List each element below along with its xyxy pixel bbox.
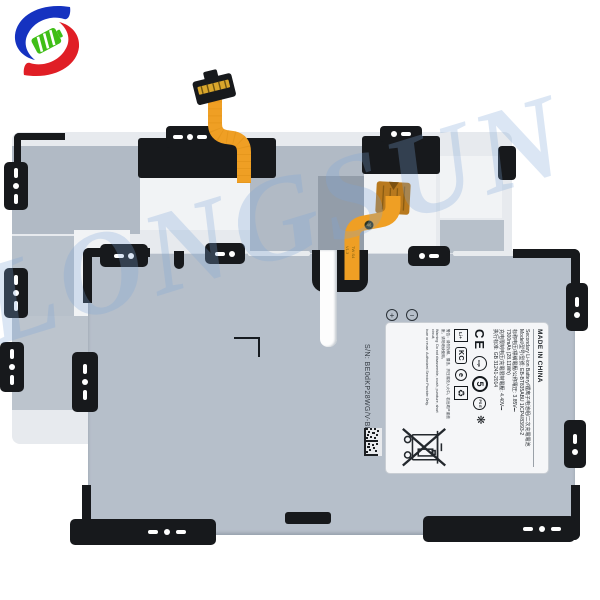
kc-mark-icon: KC [455,347,467,364]
polarity-plus-mark: + [386,309,398,321]
tab-hole [575,297,579,307]
front-battery-side-tab [564,420,586,468]
tab-hole [539,526,545,532]
tab-hole [164,529,170,535]
tab-hole [391,131,397,137]
tab-hole [83,364,87,374]
battery-spec-label: MADE IN CHINA Secondary Li-ion Battery/锂… [385,322,549,474]
flex-connector [190,66,236,106]
label-divider [533,329,534,467]
battery-edge-highlight [453,251,521,256]
serial-number-text: S/N: BE0dKP28WG/V-BLH [356,344,370,428]
cqc-mark-icon: cqc [472,356,487,371]
back-battery-side-tab [4,162,28,210]
spec-line: 标称电压/標稱電壓/公称電圧: 3.85V⎓ [511,329,517,467]
warning-line: burn or reuse. Authorized Service Provid… [425,329,430,422]
warning-line: Warning: Do not disassemble, crush, punc… [430,329,439,422]
front-battery-bottom-tab [70,519,216,545]
front-battery-bottom-tab [285,512,331,524]
tab-hole [429,254,439,258]
tab-hole [573,434,577,444]
certification-icons-row: CE cqc 5 PS E ❋ [472,329,488,467]
front-battery-bottom-tab [423,516,575,542]
tab-hole [14,275,18,285]
back-battery-right-tab [498,146,516,180]
spec-line: 7300mAh (28.11Wh) [504,329,510,467]
certification-icons-row: Li+ KC e ♻ [454,329,468,467]
front-battery-mount-tab [100,244,148,267]
warning-text: 警告：请勿拆解、撞击、挤压或投入火中。若出现严重鼓胀，请勿继续使用。 Warni… [424,329,450,422]
tab-hole [401,132,411,136]
back-battery-flex-cable [182,52,277,184]
tab-hole [574,312,580,318]
back-battery-side-tab [4,268,28,318]
ce-mark-icon: CE [472,329,487,351]
tab-hole [572,449,578,455]
flex-badge-text: 46 [367,223,372,228]
li-ion-recycle-icon: Li+ [454,329,468,342]
pse-mark-icon: PS E [473,397,486,410]
front-battery-side-tab [72,352,98,412]
back-battery-patch [440,156,502,218]
green-dot-icon: e [455,369,467,381]
tab-hole [229,251,235,257]
made-in-text: MADE IN CHINA [536,329,543,467]
spec-line: Model/型号/型號: EB-BT835ABU 1ICP4/83/93-2 [517,329,523,467]
product-photo-canvas: S/N: BE0dKP28WG/V-BLH + − MADE IN CHINA … [0,0,600,600]
tab-hole [523,527,533,531]
tab-hole [10,349,14,359]
tab-hole [83,390,87,400]
flex-marking-text: V1.3 [345,246,350,255]
tab-hole [215,252,225,256]
tab-hole [10,375,14,385]
flex-marking-text: TW S4 [351,246,356,259]
tab-hole [114,254,124,258]
crossed-bin-icon [400,427,450,467]
front-battery-hook-tab [174,251,184,269]
spec-line: Secondary Li-ion Battery/锂离子电池组/二次充電電池 [524,329,530,467]
battery-edge-highlight [248,251,310,256]
warning-line: 警告：请勿拆解、撞击、挤压或投入火中。若出现严重鼓胀，请勿继续使用。 [440,329,449,422]
front-battery: S/N: BE0dKP28WG/V-BLH + − MADE IN CHINA … [88,253,575,535]
spec-line: 充电限制电压/充電限制電壓: 4.40V⎓ [498,329,504,467]
tab-hole [128,253,134,259]
tab-hole [176,530,186,534]
logo-green-battery [30,25,65,54]
recycle-5-mark-icon: 5 [472,376,488,392]
front-battery-mount-tab [205,243,245,264]
battery-brand-logo [6,2,92,82]
polarity-minus-mark: − [406,309,418,321]
tab-hole [14,194,18,204]
tab-hole [14,168,18,178]
back-battery-side-tab [0,342,24,392]
datamatrix-code [364,428,382,456]
recycle-square-icon: ♻ [454,386,468,400]
tab-hole [148,530,158,534]
alignment-corner-mark [234,337,260,357]
front-battery-side-tab [566,283,588,331]
front-battery-flex-cable: 46 TW S4 V1.3 [320,168,420,282]
flower-mark-icon: ❋ [474,415,485,424]
tab-hole [14,301,18,311]
tab-hole [13,290,19,296]
label-bottom-row: 警告：请勿拆解、撞击、挤压或投入火中。若出现严重鼓胀，请勿继续使用。 Warni… [400,329,450,467]
tab-hole [13,183,19,189]
tab-hole [82,379,88,385]
tab-hole [9,364,15,370]
back-battery-patch [140,176,252,230]
tab-hole [551,527,561,531]
back-battery-mount-tab [380,126,422,142]
